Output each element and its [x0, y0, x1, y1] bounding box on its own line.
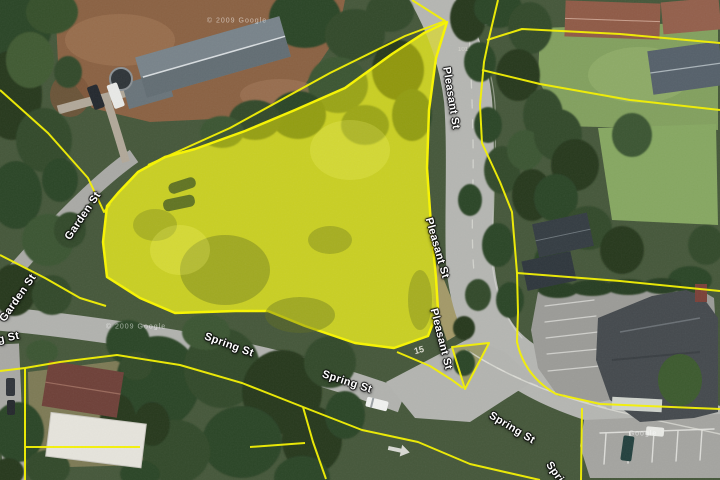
imagery-watermark-2: © 2009 Google — [106, 324, 166, 331]
map-canvas[interactable]: Pleasant St Pleasant St Pleasant St Spri… — [0, 0, 720, 480]
imagery-watermark-1: © 2009 Google — [207, 18, 267, 25]
imagery-watermark-3: Google — [629, 431, 658, 438]
pavement-marking-101: 101 — [458, 47, 468, 53]
satellite-imagery — [0, 0, 720, 480]
image-grain — [0, 0, 720, 480]
